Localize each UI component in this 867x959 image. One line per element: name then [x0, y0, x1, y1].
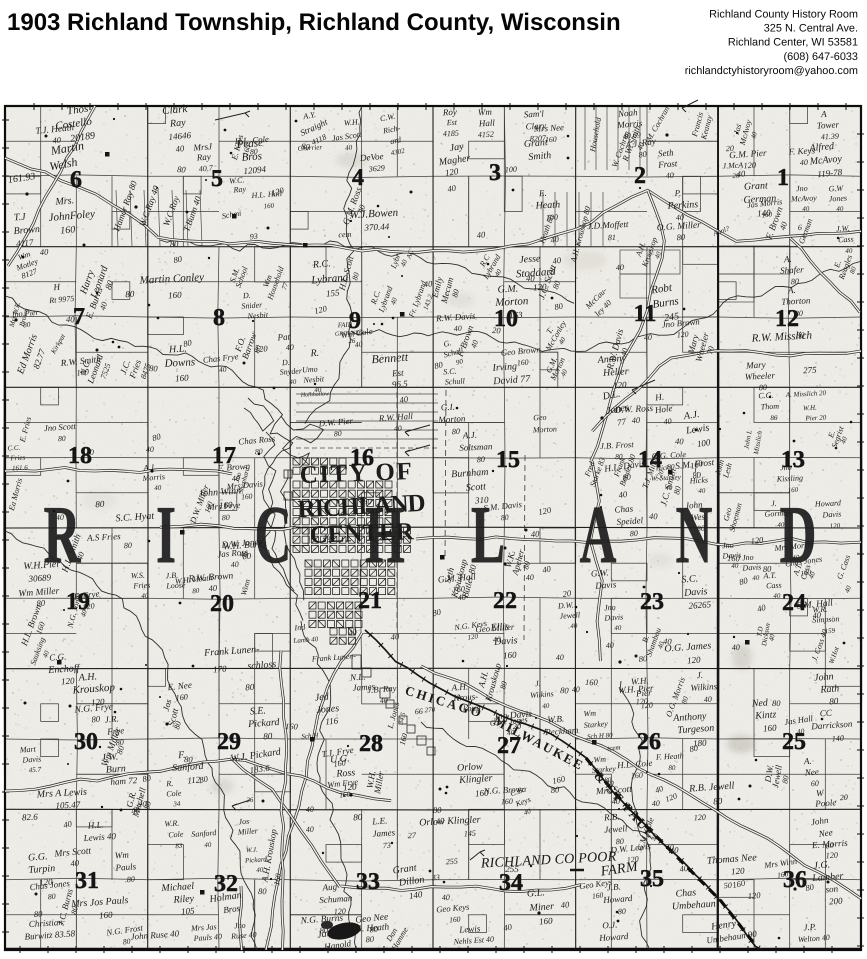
- svg-text:20: 20: [210, 591, 234, 617]
- svg-text:Sam'l: Sam'l: [524, 108, 545, 119]
- svg-text:Davis: Davis: [594, 579, 617, 591]
- svg-text:A.: A.: [787, 285, 796, 295]
- svg-text:80: 80: [95, 499, 105, 509]
- svg-text:4185: 4185: [443, 129, 459, 139]
- svg-text:120: 120: [743, 161, 757, 171]
- svg-text:80: 80: [353, 812, 363, 823]
- svg-text:Nee: Nee: [803, 767, 819, 778]
- svg-text:325 N. Central Ave.: 325 N. Central Ave.: [764, 23, 858, 35]
- svg-text:Howard: Howard: [602, 893, 633, 905]
- svg-text:Enchoff: Enchoff: [47, 663, 81, 676]
- svg-text:80: 80: [772, 698, 781, 708]
- svg-text:Est: Est: [391, 368, 405, 379]
- svg-text:120: 120: [747, 890, 761, 901]
- svg-text:160: 160: [339, 789, 351, 799]
- svg-text:160: 160: [285, 721, 299, 731]
- svg-text:80: 80: [630, 529, 639, 539]
- svg-text:40: 40: [526, 573, 535, 583]
- svg-text:koup: koup: [463, 702, 482, 713]
- svg-text:40: 40: [663, 417, 672, 427]
- svg-text:J.W.: J.W.: [836, 224, 850, 234]
- svg-text:40: 40: [611, 797, 621, 807]
- svg-text:40: 40: [423, 278, 433, 289]
- svg-text:20: 20: [492, 325, 502, 335]
- svg-text:120: 120: [255, 343, 269, 354]
- svg-text:31: 31: [75, 868, 99, 894]
- svg-text:40: 40: [704, 695, 713, 705]
- svg-text:40: 40: [394, 424, 403, 434]
- svg-text:Gorman: Gorman: [764, 508, 791, 518]
- svg-text:40: 40: [141, 592, 149, 600]
- svg-text:120: 120: [694, 813, 707, 823]
- svg-text:23: 23: [640, 589, 664, 615]
- svg-text:160: 160: [761, 210, 773, 219]
- svg-text:160: 160: [501, 797, 513, 807]
- svg-text:160: 160: [539, 916, 554, 927]
- svg-text:Kintz: Kintz: [754, 709, 777, 722]
- svg-text:W.H.: W.H.: [803, 404, 817, 413]
- svg-text:40: 40: [836, 205, 844, 213]
- svg-text:Morton: Morton: [437, 413, 466, 424]
- svg-text:40: 40: [663, 636, 673, 646]
- svg-text:80: 80: [222, 513, 231, 523]
- svg-text:Clark: Clark: [162, 103, 189, 117]
- svg-text:Pier: Pier: [635, 687, 653, 698]
- svg-text:richlandctyhistoryroom@yahoo.c: richlandctyhistoryroom@yahoo.com: [685, 65, 858, 77]
- svg-text:120: 120: [825, 851, 838, 861]
- svg-text:40: 40: [531, 529, 541, 539]
- svg-text:Grant: Grant: [744, 180, 769, 192]
- svg-text:96.5: 96.5: [392, 378, 409, 389]
- svg-text:Krous-: Krous-: [452, 691, 478, 703]
- svg-text:120: 120: [687, 655, 702, 666]
- svg-text:370.44: 370.44: [363, 221, 390, 232]
- svg-text:4152: 4152: [478, 130, 494, 140]
- svg-text:A: A: [820, 109, 828, 119]
- svg-text:Snyder: Snyder: [279, 366, 303, 377]
- svg-text:Jno: Jno: [796, 184, 808, 194]
- svg-text:John: John: [685, 499, 704, 510]
- svg-text:80: 80: [668, 764, 676, 772]
- svg-text:12094: 12094: [243, 164, 267, 176]
- svg-text:275: 275: [803, 365, 818, 376]
- svg-text:G.W: G.W: [828, 184, 844, 194]
- svg-text:270: 270: [424, 706, 436, 715]
- svg-text:O.G. Cole: O.G. Cole: [652, 450, 687, 461]
- svg-text:80: 80: [34, 909, 44, 919]
- svg-text:80: 80: [124, 541, 132, 550]
- svg-text:80: 80: [615, 452, 623, 461]
- svg-text:G.L.: G.L.: [527, 887, 546, 899]
- svg-text:Cole: Cole: [168, 829, 184, 839]
- svg-text:Davis: Davis: [741, 562, 761, 572]
- svg-text:40: 40: [644, 333, 652, 342]
- svg-text:80: 80: [149, 363, 159, 373]
- svg-text:40: 40: [560, 899, 570, 910]
- svg-text:Tower: Tower: [817, 119, 840, 130]
- svg-text:Pauls: Pauls: [114, 861, 137, 873]
- svg-text:Richland Center, WI 53581: Richland Center, WI 53581: [728, 37, 858, 49]
- svg-text:80: 80: [91, 714, 101, 725]
- svg-text:1: 1: [777, 165, 789, 191]
- svg-text:100: 100: [696, 437, 711, 449]
- svg-text:Wes: Wes: [690, 511, 705, 522]
- svg-text:160: 160: [241, 492, 253, 502]
- svg-text:30: 30: [74, 729, 98, 755]
- svg-text:S.E.: S.E.: [249, 705, 266, 717]
- svg-text:Schull: Schull: [445, 376, 466, 386]
- svg-text:DeVoe: DeVoe: [359, 151, 384, 163]
- svg-text:82.6: 82.6: [22, 812, 39, 823]
- svg-text:3: 3: [489, 160, 501, 186]
- svg-text:20: 20: [840, 793, 849, 803]
- svg-text:80: 80: [122, 937, 131, 947]
- svg-text:40: 40: [146, 445, 154, 454]
- svg-text:40: 40: [542, 702, 550, 711]
- svg-text:.80: .80: [125, 875, 136, 885]
- svg-text:J.G.: J.G.: [813, 859, 830, 871]
- svg-text:Jones: Jones: [316, 703, 340, 716]
- svg-text:J.P.: J.P.: [803, 922, 817, 933]
- svg-text:80: 80: [125, 289, 135, 299]
- svg-text:A.H.: A.H.: [77, 671, 97, 683]
- svg-text:J.: J.: [535, 679, 541, 688]
- svg-text:40: 40: [614, 624, 622, 633]
- svg-text:G.G.: G.G.: [28, 851, 48, 863]
- svg-text:F. Keys: F. Keys: [787, 145, 815, 156]
- svg-text:40: 40: [493, 635, 502, 645]
- svg-text:100: 100: [505, 165, 517, 175]
- svg-text:Richland County History Room: Richland County History Room: [709, 9, 858, 21]
- svg-text:40: 40: [230, 560, 239, 570]
- svg-text:Cass: Cass: [838, 235, 854, 245]
- svg-text:80: 80: [245, 682, 255, 693]
- svg-text:Aug: Aug: [321, 881, 338, 892]
- svg-text:Orlow: Orlow: [457, 761, 484, 774]
- svg-text:40: 40: [777, 521, 785, 529]
- svg-text:160: 160: [449, 915, 461, 925]
- svg-text:D.W.: D.W.: [557, 600, 574, 610]
- svg-text:7: 7: [73, 304, 85, 330]
- svg-text:160: 160: [175, 373, 190, 384]
- svg-text:Jewell: Jewell: [604, 823, 628, 835]
- svg-text:Jno: Jno: [780, 463, 792, 473]
- svg-text:160: 160: [777, 869, 790, 879]
- svg-text:Downs: Downs: [163, 356, 195, 370]
- svg-text:161.6: 161.6: [12, 464, 29, 473]
- svg-text:80: 80: [713, 796, 723, 807]
- svg-text:W.R.: W.R.: [164, 818, 179, 828]
- svg-text:40: 40: [354, 340, 363, 350]
- svg-text:15: 15: [496, 447, 520, 473]
- svg-text:Nesbit: Nesbit: [302, 374, 325, 385]
- svg-text:Hall: Hall: [478, 118, 496, 129]
- svg-text:40: 40: [605, 778, 615, 788]
- svg-text:40: 40: [40, 247, 50, 257]
- svg-text:40: 40: [736, 168, 746, 179]
- svg-text:80: 80: [170, 239, 180, 249]
- svg-text:John: John: [814, 671, 834, 683]
- svg-text:Rath: Rath: [819, 683, 840, 695]
- svg-text:Ray: Ray: [232, 184, 247, 194]
- svg-text:40: 40: [289, 378, 297, 387]
- svg-text:40: 40: [454, 324, 463, 334]
- svg-text:Lewis: Lewis: [458, 923, 481, 935]
- svg-text:40: 40: [631, 416, 641, 425]
- svg-text:40: 40: [606, 641, 615, 651]
- svg-text:40: 40: [204, 841, 212, 850]
- svg-text:40: 40: [306, 805, 315, 815]
- svg-text:160: 160: [631, 771, 644, 781]
- svg-text:Umo: Umo: [302, 364, 318, 374]
- svg-text:Wm: Wm: [478, 107, 493, 118]
- svg-text:Fries: Fries: [132, 581, 150, 591]
- svg-text:73: 73: [383, 841, 392, 851]
- svg-text:45.7: 45.7: [28, 766, 41, 775]
- svg-text:Est: Est: [446, 118, 458, 128]
- svg-text:160: 160: [60, 224, 76, 236]
- svg-text:Brown: Brown: [13, 224, 40, 237]
- svg-text:80: 80: [676, 233, 686, 243]
- svg-text:40: 40: [380, 696, 388, 706]
- svg-text:W.H.: W.H.: [344, 117, 360, 127]
- svg-text:80: 80: [258, 886, 267, 896]
- svg-text:R.C.: R.C.: [311, 258, 331, 271]
- svg-text:Mary: Mary: [745, 360, 766, 371]
- svg-text:160: 160: [263, 202, 275, 211]
- svg-text:R.B.: R.B.: [603, 811, 620, 822]
- svg-text:Heath: Heath: [534, 199, 560, 211]
- svg-text:A: A: [580, 489, 617, 580]
- svg-text:160: 160: [545, 135, 557, 145]
- svg-text:2: 2: [634, 163, 646, 189]
- svg-text:80: 80: [363, 496, 373, 506]
- svg-text:S.C.: S.C.: [443, 367, 457, 377]
- svg-text:40: 40: [232, 474, 241, 484]
- svg-text:Wheeler: Wheeler: [745, 370, 776, 382]
- svg-text:Starkey: Starkey: [584, 719, 609, 730]
- svg-text:80: 80: [477, 455, 485, 464]
- svg-text:120: 120: [829, 522, 840, 531]
- svg-text:Wm: Wm: [583, 709, 596, 719]
- svg-text:33: 33: [431, 873, 441, 883]
- svg-text:Howard: Howard: [598, 931, 629, 943]
- svg-text:G.W.: G.W.: [591, 567, 609, 578]
- svg-text:Cass: Cass: [766, 581, 782, 591]
- svg-text:40: 40: [732, 643, 741, 653]
- svg-text:40: 40: [219, 365, 228, 375]
- svg-text:40: 40: [66, 314, 75, 324]
- svg-text:Turpin: Turpin: [28, 863, 55, 876]
- svg-text:J.: J.: [696, 670, 703, 680]
- svg-text:40: 40: [56, 513, 64, 522]
- svg-text:CC: CC: [819, 708, 833, 719]
- svg-text:40: 40: [556, 653, 565, 663]
- svg-text:Jed: Jed: [314, 691, 330, 703]
- svg-text:cem: cem: [338, 230, 352, 240]
- svg-text:Nee: Nee: [817, 827, 833, 839]
- svg-text:160: 160: [585, 677, 599, 687]
- svg-text:160: 160: [727, 553, 741, 563]
- svg-text:Bennett: Bennett: [371, 350, 409, 367]
- svg-text:40: 40: [306, 825, 315, 835]
- svg-text:40: 40: [86, 448, 94, 457]
- svg-text:21: 21: [358, 588, 382, 614]
- svg-text:Chas: Chas: [614, 503, 634, 514]
- svg-text:80: 80: [500, 513, 509, 523]
- svg-text:16: 16: [350, 445, 374, 471]
- svg-text:W.H.: W.H.: [631, 675, 649, 686]
- svg-text:A.J.: A.J.: [462, 430, 478, 441]
- svg-text:255: 255: [505, 864, 519, 874]
- svg-text:80: 80: [334, 429, 343, 439]
- svg-text:145: 145: [464, 829, 476, 839]
- svg-text:A.: A.: [783, 254, 792, 264]
- svg-text:Pat: Pat: [276, 332, 291, 343]
- svg-text:Jno: Jno: [742, 553, 754, 563]
- svg-text:80: 80: [697, 524, 706, 534]
- svg-text:120: 120: [626, 854, 639, 864]
- svg-text:Jesse: Jesse: [519, 253, 541, 265]
- svg-text:Kissling: Kissling: [776, 473, 804, 483]
- svg-text:Jno: Jno: [604, 603, 616, 613]
- svg-text:160: 160: [503, 650, 518, 661]
- svg-text:R.: R.: [165, 779, 173, 789]
- svg-text:120: 120: [508, 721, 522, 732]
- svg-text:40: 40: [802, 205, 810, 213]
- svg-text:Jewell: Jewell: [559, 610, 581, 620]
- svg-text:26: 26: [246, 796, 254, 805]
- svg-text:40: 40: [322, 531, 332, 542]
- svg-text:Jones: Jones: [829, 194, 848, 204]
- svg-text:Sanford: Sanford: [191, 828, 218, 839]
- svg-text:40: 40: [675, 436, 685, 446]
- svg-text:tcem: tcem: [607, 744, 621, 753]
- svg-text:Jay: Jay: [449, 141, 465, 154]
- svg-text:Ind: Ind: [293, 623, 306, 633]
- svg-text:H.: H.: [654, 391, 665, 402]
- svg-text:Cole: Cole: [166, 788, 182, 798]
- svg-text:160: 160: [800, 568, 812, 577]
- svg-text:Wilkins: Wilkins: [690, 681, 718, 693]
- svg-text:A.: A.: [803, 756, 812, 767]
- svg-text:Soltsman: Soltsman: [459, 441, 493, 453]
- svg-text:Ray: Ray: [169, 117, 187, 129]
- svg-text:28: 28: [359, 731, 383, 757]
- svg-text:O.J.: O.J.: [602, 919, 618, 930]
- svg-text:160: 160: [517, 358, 530, 368]
- svg-text:80: 80: [452, 427, 460, 436]
- svg-text:80: 80: [560, 685, 570, 695]
- svg-text:Chas: Chas: [675, 887, 696, 899]
- svg-text:80: 80: [829, 696, 839, 707]
- svg-text:Wm: Wm: [114, 849, 129, 860]
- svg-text:Riley: Riley: [172, 893, 195, 906]
- svg-text:40: 40: [800, 158, 808, 167]
- svg-text:Frost: Frost: [657, 158, 678, 170]
- svg-text:30689: 30689: [27, 572, 52, 584]
- svg-text:Snider: Snider: [241, 300, 263, 310]
- svg-text:S.C.: S.C.: [681, 573, 698, 585]
- svg-text:C: C: [255, 489, 292, 580]
- svg-text:40: 40: [572, 685, 581, 695]
- svg-text:105: 105: [181, 906, 196, 917]
- svg-text:Wilkins: Wilkins: [530, 689, 554, 700]
- svg-text:160: 160: [76, 367, 89, 377]
- svg-text:60: 60: [811, 779, 820, 789]
- svg-text:33: 33: [356, 869, 380, 895]
- svg-text:40: 40: [665, 171, 674, 181]
- svg-text:40: 40: [442, 893, 451, 903]
- svg-text:81: 81: [608, 233, 616, 242]
- svg-text:163: 163: [509, 310, 524, 321]
- svg-text:40: 40: [208, 583, 218, 594]
- svg-text:40: 40: [154, 484, 162, 493]
- svg-text:Mrs Jas: Mrs Jas: [190, 922, 217, 933]
- svg-text:40: 40: [70, 858, 80, 869]
- svg-text:40: 40: [698, 487, 706, 495]
- svg-text:8: 8: [213, 305, 225, 331]
- svg-text:Pickard: Pickard: [247, 717, 281, 730]
- svg-text:Davis: Davis: [603, 612, 623, 622]
- svg-text:Irving: Irving: [491, 361, 517, 374]
- svg-text:Mrs Nee: Mrs Nee: [533, 122, 565, 134]
- svg-text:160: 160: [452, 584, 466, 594]
- svg-text:Miner: Miner: [528, 901, 554, 914]
- svg-text:120: 120: [444, 166, 459, 178]
- svg-text:Poole: Poole: [814, 797, 837, 809]
- svg-text:Ray: Ray: [195, 151, 211, 162]
- svg-text:Shafer: Shafer: [780, 264, 804, 275]
- svg-text:Smith: Smith: [528, 150, 552, 163]
- svg-text:200: 200: [829, 896, 844, 907]
- svg-text:N.L.: N.L.: [349, 671, 366, 682]
- svg-text:P.: P.: [673, 188, 681, 198]
- svg-text:D.W. Ross: D.W. Ross: [613, 404, 653, 416]
- svg-text:1903 Richland Township, Richla: 1903 Richland Township, Richland County,…: [7, 9, 621, 36]
- svg-text:40: 40: [570, 622, 578, 631]
- svg-text:160: 160: [787, 486, 798, 495]
- svg-text:40: 40: [649, 511, 658, 521]
- svg-text:Fries: Fries: [9, 454, 25, 463]
- svg-text:G.M.: G.M.: [497, 283, 518, 295]
- svg-text:A.S Fries: A.S Fries: [86, 531, 121, 543]
- svg-text:Seth: Seth: [658, 147, 675, 158]
- svg-text:40: 40: [773, 592, 781, 600]
- svg-text:120: 120: [677, 330, 690, 340]
- svg-text:80: 80: [58, 434, 66, 444]
- svg-text:ham 72: ham 72: [110, 775, 138, 787]
- svg-text:Perkins: Perkins: [666, 199, 698, 212]
- svg-text:80: 80: [177, 164, 187, 175]
- svg-text:40: 40: [792, 553, 801, 563]
- svg-text:Speidel: Speidel: [616, 515, 644, 527]
- svg-text:41.39: 41.39: [821, 132, 839, 142]
- svg-text:40.7: 40.7: [198, 163, 214, 173]
- svg-text:son: son: [825, 884, 839, 895]
- svg-text:4117: 4117: [16, 237, 35, 249]
- svg-text:160: 160: [591, 890, 604, 901]
- svg-text:40: 40: [652, 799, 661, 809]
- svg-text:T.J: T.J: [13, 211, 26, 223]
- svg-text:26265: 26265: [688, 599, 712, 611]
- svg-text:Pier 20: Pier 20: [804, 413, 827, 422]
- svg-text:66: 66: [415, 707, 424, 717]
- svg-text:80: 80: [47, 892, 56, 902]
- svg-text:W.S.: W.S.: [131, 571, 145, 581]
- svg-text:40: 40: [526, 273, 536, 283]
- svg-text:83: 83: [175, 842, 183, 851]
